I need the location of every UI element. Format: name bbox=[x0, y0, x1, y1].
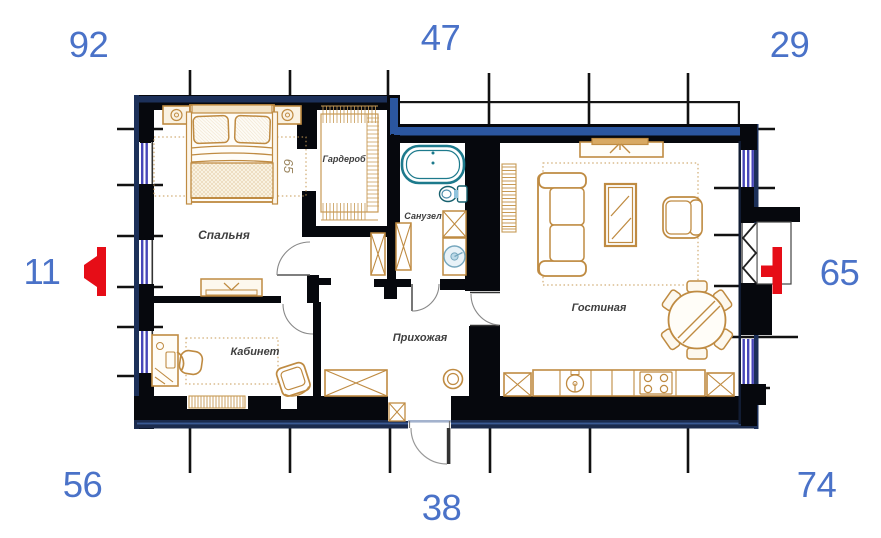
svg-text:65: 65 bbox=[820, 252, 860, 293]
svg-text:Гардероб: Гардероб bbox=[322, 154, 365, 164]
svg-text:65: 65 bbox=[281, 159, 296, 174]
svg-text:56: 56 bbox=[63, 464, 103, 505]
svg-text:29: 29 bbox=[770, 24, 810, 65]
svg-text:38: 38 bbox=[422, 487, 462, 528]
svg-text:92: 92 bbox=[69, 24, 109, 65]
svg-text:47: 47 bbox=[421, 17, 461, 58]
svg-text:Кабинет: Кабинет bbox=[231, 346, 280, 358]
svg-text:11: 11 bbox=[24, 251, 61, 292]
svg-text:Санузел: Санузел bbox=[404, 211, 442, 221]
svg-text:74: 74 bbox=[797, 464, 837, 505]
svg-text:Прихожая: Прихожая bbox=[393, 332, 448, 344]
svg-text:Спальня: Спальня bbox=[198, 228, 250, 242]
svg-text:Гостиная: Гостиная bbox=[572, 302, 627, 314]
